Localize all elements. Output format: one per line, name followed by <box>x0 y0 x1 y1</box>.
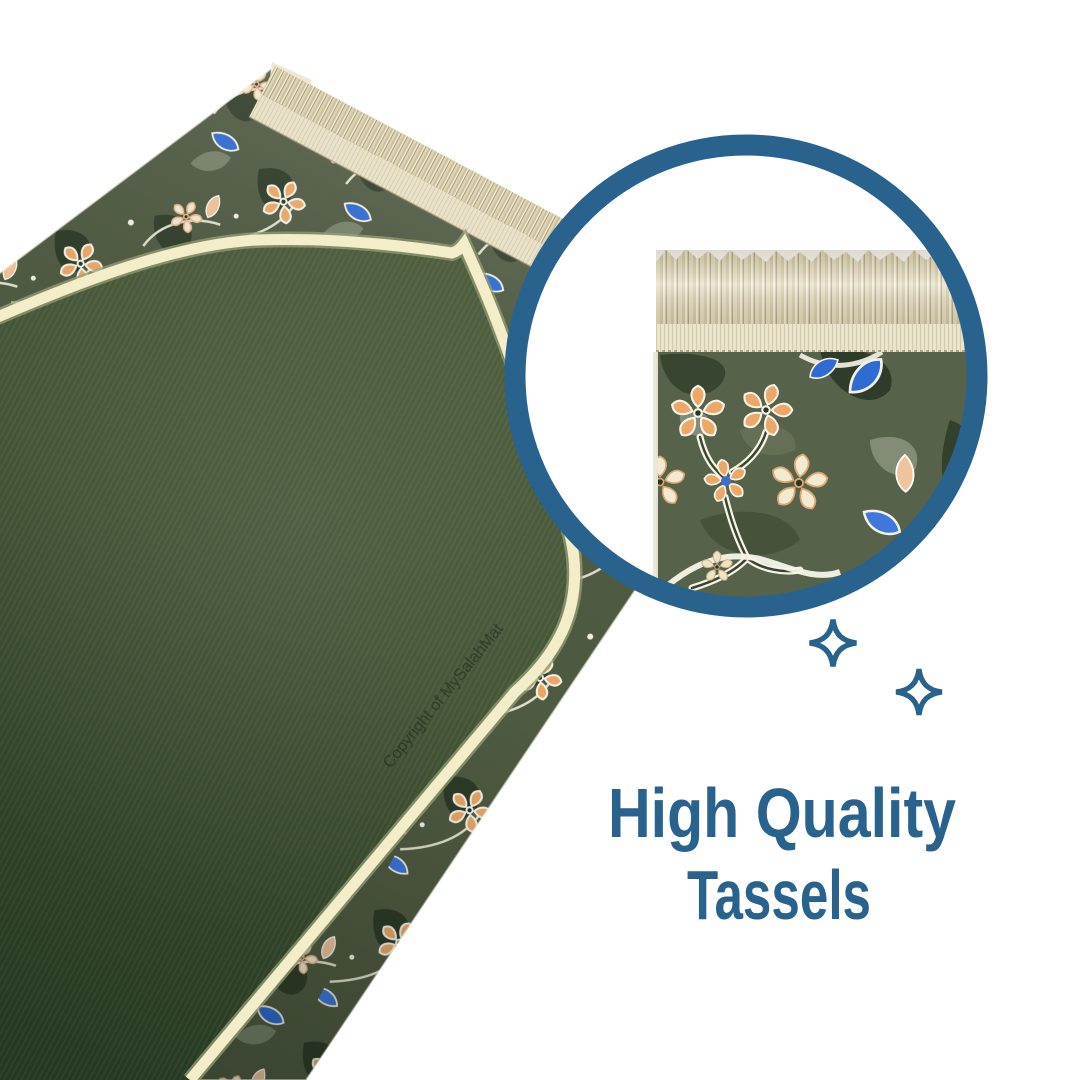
product-graphic-canvas: Copyright of MySalahMat <box>0 0 1080 1080</box>
headline-text: High Quality Tassels <box>608 774 956 934</box>
product-graphic: Copyright of MySalahMat <box>0 0 1080 1080</box>
tassel-closeup <box>634 249 1000 602</box>
headline-line-1: High Quality <box>608 774 956 852</box>
tassel-header-stitches <box>656 324 1000 352</box>
headline-line-2: Tassels <box>687 856 871 934</box>
closeup-fabric-edge <box>653 352 658 592</box>
tassel-zoom-callout <box>515 145 1000 607</box>
sparkle-icon <box>896 669 942 715</box>
sparkle-icon <box>810 620 857 667</box>
